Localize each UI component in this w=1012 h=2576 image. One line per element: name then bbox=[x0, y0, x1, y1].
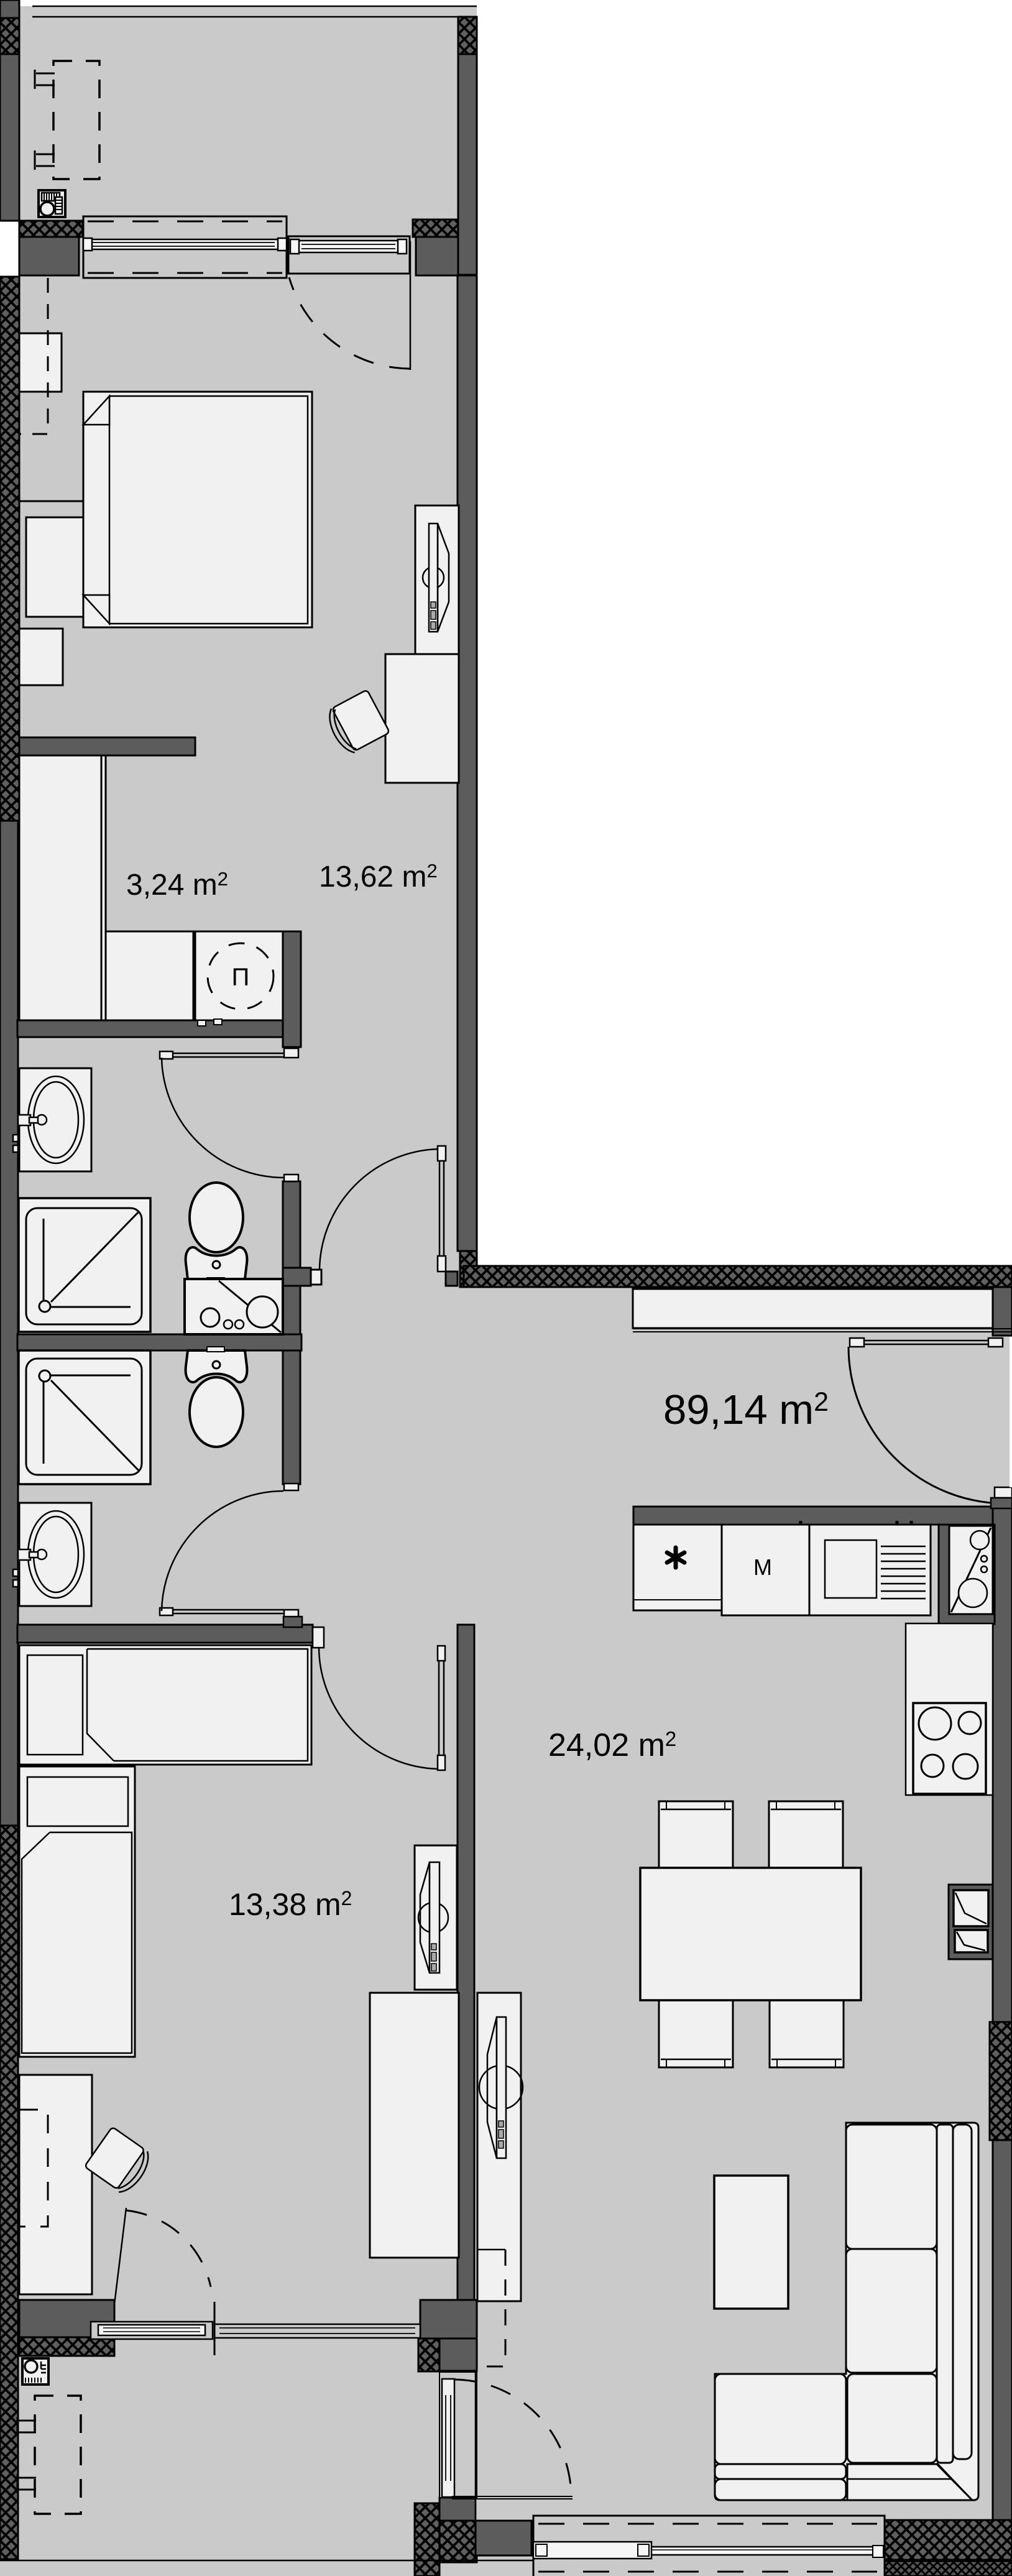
svg-text:3,24 m2: 3,24 m2 bbox=[126, 868, 228, 902]
svg-text:13,62 m2: 13,62 m2 bbox=[319, 860, 438, 893]
svg-text:13,38 m2: 13,38 m2 bbox=[229, 1887, 352, 1922]
svg-text:M: M bbox=[753, 1554, 772, 1580]
svg-text:89,14 m2: 89,14 m2 bbox=[663, 1387, 829, 1433]
svg-text:Π: Π bbox=[232, 964, 250, 991]
svg-text:24,02 m2: 24,02 m2 bbox=[548, 1727, 676, 1763]
